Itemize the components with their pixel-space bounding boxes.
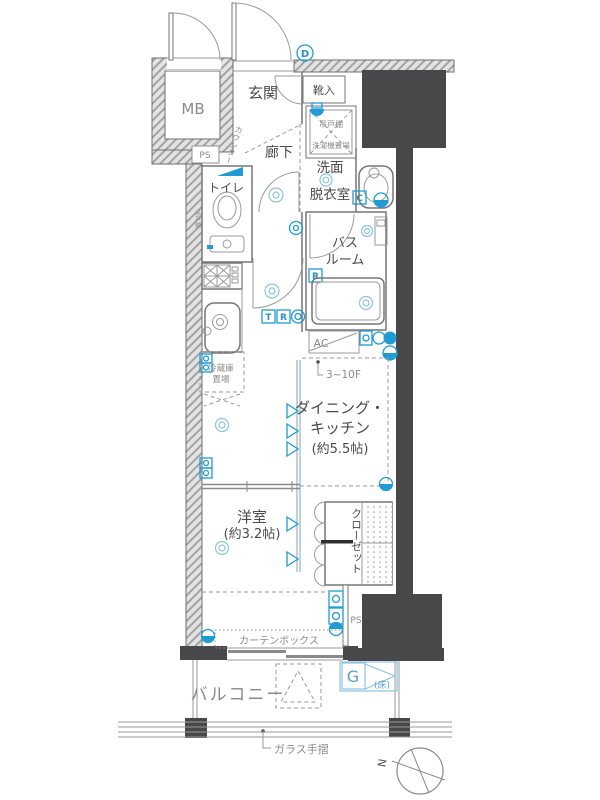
bathroom-label-2: ルーム: [326, 253, 365, 268]
compass-north-label: N: [375, 758, 389, 768]
mb-label: MB: [181, 100, 204, 118]
wall-below-closet: [343, 585, 348, 646]
entrance-door: [232, 3, 291, 60]
dk-label-1: ダイニング・: [295, 399, 385, 417]
symbol-c: C: [356, 194, 363, 204]
symbol-r-hall: R: [280, 313, 287, 323]
fridge-label-1: 冷蔵庫: [208, 363, 234, 374]
symbol-t: T: [265, 313, 272, 323]
washer-label: 洗濯機置場: [312, 140, 350, 150]
entrance-label: 玄関: [248, 84, 278, 102]
western-room-label-2: (約3.2帖): [224, 527, 281, 542]
gas-letter: G: [347, 667, 359, 686]
floor-plan-canvas: D C: [0, 0, 600, 800]
washbasin: C: [353, 166, 393, 208]
balcony-label: バルコニー: [191, 685, 286, 705]
washroom-label-2: 脱衣室: [310, 186, 351, 203]
shoe-cabinet-label: 靴入: [313, 83, 335, 97]
ps-lower-label: PS: [350, 616, 361, 626]
toilet-label: トイレ: [208, 181, 244, 195]
bathroom: R: [306, 212, 387, 330]
western-room-label-1: 洋室: [237, 508, 267, 526]
dk-label-3: (約5.5帖): [312, 442, 369, 457]
hall-switch-boxes: T R: [262, 310, 305, 323]
kitchen: [202, 263, 242, 353]
bathroom-label-1: バス: [332, 236, 358, 251]
glass-rail-callout: ガラス手摺: [261, 729, 329, 756]
ps-upper-label: PS: [199, 151, 210, 161]
corridor-label: 廊下: [265, 144, 293, 161]
laundry-shelf-label: 吊戸棚: [319, 119, 343, 129]
doorbell-icon: D: [297, 45, 313, 61]
glass-rail-label: ガラス手摺: [274, 742, 329, 756]
compass: N: [375, 748, 445, 794]
ps-lower-outlets: [329, 591, 343, 636]
toilet-shelf-label: 吊戸棚: [194, 210, 201, 229]
ac-label: AC: [313, 337, 328, 350]
floor-note: 3~10F: [316, 360, 361, 381]
gas-outlet: G (床): [340, 662, 397, 691]
curtain-box-label: カーテンボックス: [239, 635, 319, 647]
sliding-partition-track: [287, 360, 300, 572]
mb-door: [169, 13, 220, 60]
washroom-label-1: 洗面: [317, 160, 344, 176]
fridge-label-2: 置場: [212, 374, 230, 385]
floor-plan: D C: [0, 0, 600, 800]
symbol-d: D: [301, 49, 309, 60]
ac-box: AC: [309, 331, 397, 360]
gas-floor-note: (床): [374, 679, 390, 691]
south-window: [227, 648, 343, 660]
dk-label-2: キッチン: [310, 419, 370, 437]
dk-door: [253, 258, 303, 308]
floor-note-label: 3~10F: [326, 369, 361, 381]
closet-label: クローゼット: [350, 508, 363, 574]
toilet-shelf-icon: [217, 167, 243, 176]
